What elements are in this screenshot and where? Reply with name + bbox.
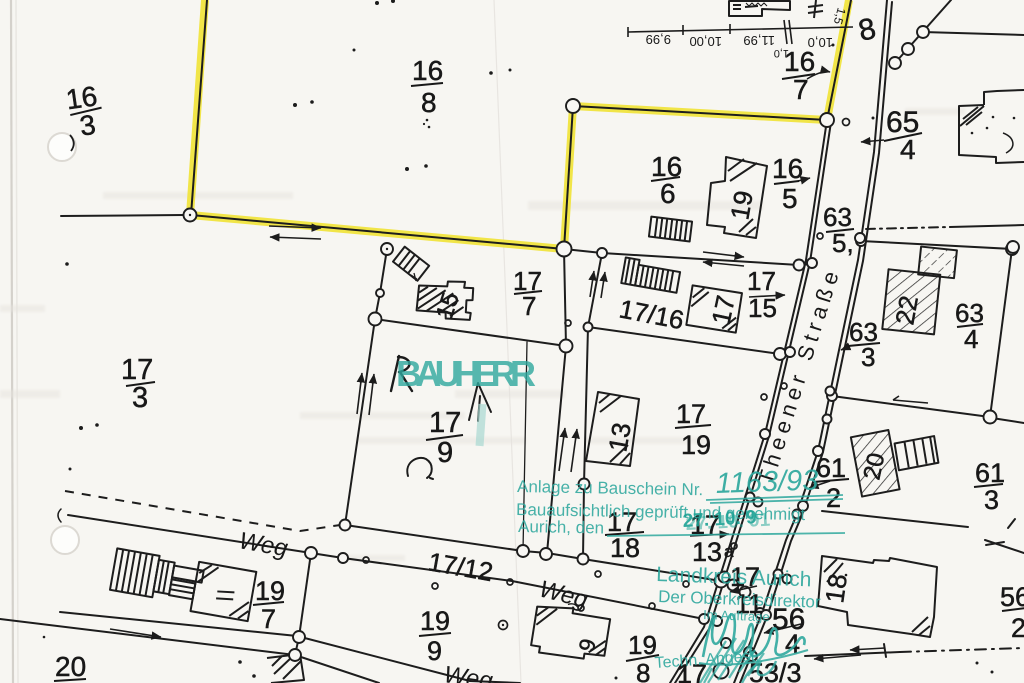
svg-text:a: a [724, 542, 734, 561]
svg-text:9: 9 [437, 437, 453, 469]
svg-text:3: 3 [861, 342, 875, 372]
svg-text:20: 20 [55, 651, 86, 682]
svg-text:2: 2 [826, 483, 841, 513]
svg-text:13: 13 [602, 420, 637, 454]
svg-text:16: 16 [772, 153, 803, 184]
svg-text:5: 5 [782, 183, 798, 214]
svg-text:7: 7 [261, 604, 276, 634]
svg-text:Aurich, den: Aurich, den [518, 517, 604, 537]
svg-text:17: 17 [706, 293, 741, 328]
svg-text:3: 3 [984, 485, 999, 515]
svg-text:Anlage zu Bauschein Nr.: Anlage zu Bauschein Nr. [517, 477, 703, 499]
svg-text:9,99: 9,99 [646, 32, 671, 47]
svg-text:7: 7 [793, 74, 809, 105]
svg-text:1163/93: 1163/93 [715, 464, 819, 500]
svg-text:11,99: 11,99 [743, 33, 775, 48]
svg-text:18: 18 [819, 572, 853, 605]
svg-text:16: 16 [412, 55, 443, 86]
svg-text:7: 7 [522, 291, 536, 321]
svg-text:22: 22 [889, 293, 924, 327]
svg-text:17: 17 [429, 407, 461, 439]
svg-text:BAUHERR: BAUHERR [396, 353, 537, 394]
svg-text:19: 19 [724, 188, 759, 222]
svg-text:19: 19 [681, 430, 711, 460]
svg-text:61: 61 [816, 453, 846, 483]
svg-text:20: 20 [858, 451, 890, 483]
svg-text:17: 17 [676, 399, 706, 429]
svg-text:17: 17 [747, 266, 776, 296]
svg-text:5,: 5, [832, 228, 854, 258]
svg-text:13: 13 [692, 537, 722, 567]
svg-text:19: 19 [420, 606, 450, 636]
svg-text:56: 56 [1000, 582, 1024, 612]
svg-text:27. 10. 91: 27. 10. 91 [685, 510, 771, 535]
svg-text:8: 8 [636, 658, 650, 683]
svg-text:10,0: 10,0 [808, 35, 833, 50]
svg-text:10,00: 10,00 [689, 34, 722, 49]
svg-text:4: 4 [964, 324, 978, 354]
svg-text:6: 6 [660, 178, 676, 209]
svg-text:18: 18 [610, 533, 640, 563]
svg-text:1,0: 1,0 [774, 47, 789, 59]
svg-text:2: 2 [1011, 613, 1024, 643]
svg-text:15: 15 [748, 293, 777, 323]
svg-text:9: 9 [427, 636, 442, 666]
svg-text:4: 4 [900, 134, 916, 165]
svg-text:3: 3 [132, 382, 148, 414]
svg-text:8: 8 [421, 87, 437, 118]
